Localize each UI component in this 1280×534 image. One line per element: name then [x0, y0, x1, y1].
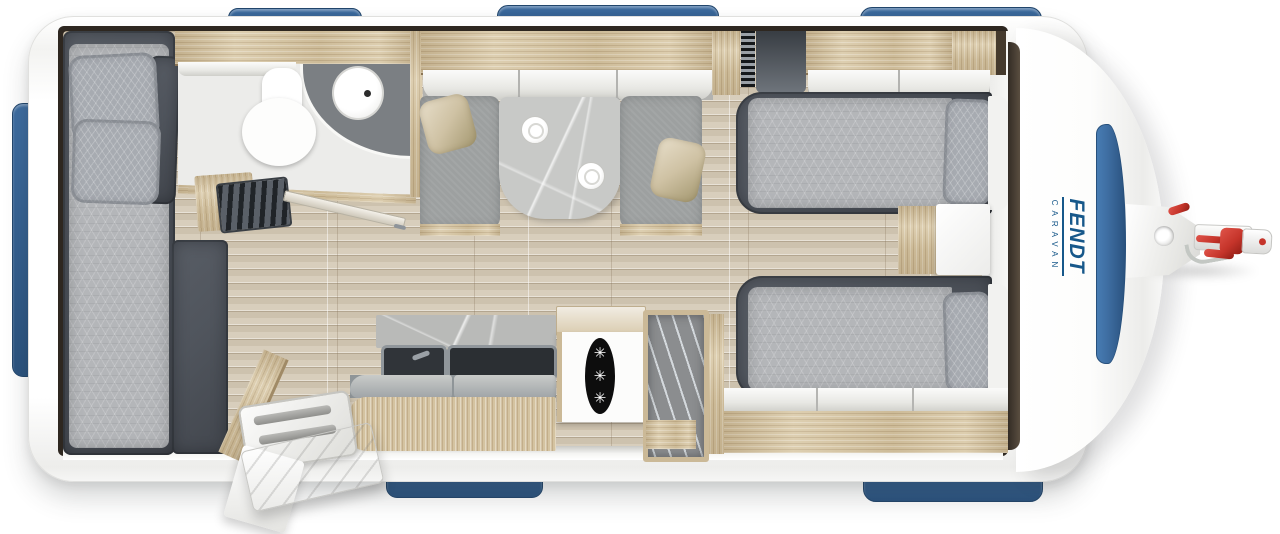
kitchen-counter — [376, 315, 556, 348]
brand-logo: FENDT CARAVAN — [1022, 196, 1112, 306]
coupling-red-dot — [1259, 238, 1266, 245]
lid-cover — [454, 375, 556, 398]
nightstand-shelf — [898, 206, 938, 274]
locker-wood-shelf — [421, 31, 713, 75]
snowflake-icon: ✳ — [594, 391, 607, 406]
locker-door — [520, 70, 615, 100]
divider-cabinet — [712, 31, 740, 95]
bed-bottom-seat-band — [722, 388, 1008, 412]
kitchen-lid-covers — [350, 375, 556, 398]
fridge-freezer-icon: ✳ ✳ ✳ — [585, 338, 615, 414]
bed-bottom-duvet — [748, 287, 952, 391]
toilet-bowl — [242, 98, 316, 166]
kitchen-front — [350, 397, 556, 451]
brand-logo-text: FENDT CARAVAN — [1041, 194, 1087, 278]
seat-panel — [818, 388, 912, 412]
bed-top-headboard — [988, 96, 1008, 210]
snowflake-icon: ✳ — [594, 346, 607, 361]
tray-bar — [253, 405, 331, 426]
caravan-floorplan: ✳ ✳ ✳ FENDT CARAVAN — [0, 0, 1280, 534]
bed-bottom-pillow — [942, 291, 993, 393]
front-wall-edge — [1006, 42, 1020, 450]
bathroom-overhead-cabinet — [175, 31, 415, 66]
bed-bottom-headboard — [988, 284, 1008, 396]
dinette-plinth-right — [620, 224, 702, 236]
locker-wood-shelf-front — [806, 31, 952, 75]
drawbar-hole — [1154, 226, 1174, 246]
toilet-seat-ring — [253, 107, 303, 155]
coffee-cup — [577, 162, 605, 190]
bed-top-pillow — [942, 98, 994, 206]
faucet-icon — [412, 350, 431, 361]
seat-panel — [722, 388, 816, 412]
heater-coil-icon — [741, 31, 755, 87]
brand-subname: CARAVAN — [1050, 194, 1059, 278]
rear-bed-foot-bench — [172, 240, 228, 454]
brand-name: FENDT — [1062, 197, 1087, 276]
heater-icon — [216, 176, 293, 233]
dinette-table — [499, 97, 621, 219]
wardrobe-base — [646, 420, 696, 449]
hitch-coupling-head — [1241, 228, 1272, 255]
washbasin — [332, 66, 384, 120]
divider-locker — [756, 31, 806, 93]
bed-bottom-wood-front — [722, 411, 1008, 453]
basin-drain — [364, 90, 371, 97]
seat-panel — [914, 388, 1008, 412]
rear-bed-pillow-2 — [71, 118, 162, 205]
coffee-cup — [521, 116, 549, 144]
dinette-plinth-left — [420, 224, 500, 236]
snowflake-icon: ✳ — [594, 369, 607, 384]
corner-cabinet — [952, 31, 1006, 75]
bed-top-duvet — [748, 98, 952, 208]
lid-cover — [350, 375, 452, 398]
nightstand-top — [936, 204, 990, 275]
